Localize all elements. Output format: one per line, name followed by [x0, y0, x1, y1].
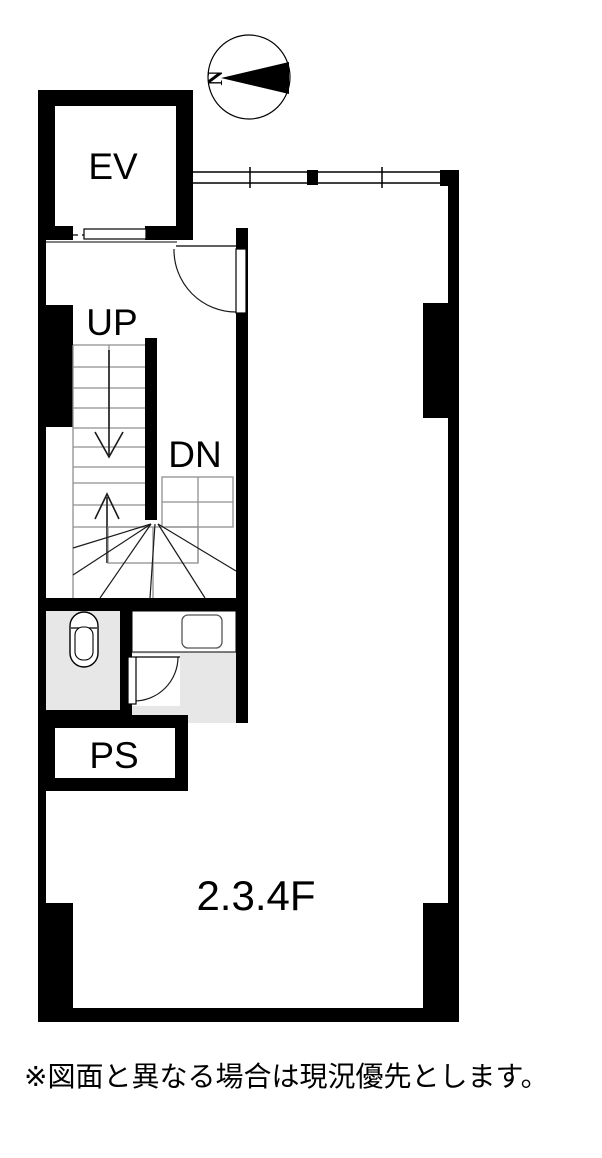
wall-left-pilaster-lower: [38, 903, 73, 1020]
floor-plan-canvas: N: [0, 0, 602, 1158]
wall-right-outer: [448, 172, 459, 1022]
floor-number-label: 2.3.4F: [196, 872, 315, 919]
wall-stair-bottom: [38, 598, 248, 611]
compass: N: [203, 35, 290, 119]
wall-left-pilaster-upper: [38, 305, 73, 427]
stairs-down-label: DN: [168, 434, 221, 475]
wall-top-right-corner: [440, 170, 459, 186]
elevator-label: EV: [88, 146, 138, 187]
wall-ev-right: [176, 90, 193, 240]
sink-icon: [182, 615, 222, 648]
wall-ev-bottom-right: [145, 226, 177, 240]
washroom-door-leaf: [128, 657, 136, 704]
hall-door: [174, 246, 248, 313]
wall-stair-center: [145, 338, 157, 520]
wall-ev-left: [38, 90, 55, 240]
compass-north-label: N: [203, 70, 227, 85]
toilet-icon: [70, 612, 98, 667]
stairs-up-label: UP: [86, 302, 137, 343]
north-arrow-icon: [221, 62, 289, 94]
stair-dn-grid: [108, 477, 233, 598]
hall-door-swing-arc: [174, 249, 236, 312]
floor-plan-page: N: [0, 0, 602, 1158]
wall-bottom: [38, 1008, 459, 1022]
wall-ev-top: [38, 90, 193, 106]
pipe-shaft-label: PS: [89, 735, 138, 776]
disclaimer-note: ※図面と異なる場合は現況優先とします。: [24, 1060, 549, 1093]
hall-door-leaf: [236, 249, 246, 313]
wall-right-pilaster-lower: [423, 903, 459, 1020]
bathroom: [46, 611, 236, 723]
stair-down-arrow-icon: [95, 350, 123, 457]
wall-right-pilaster-upper: [423, 303, 459, 418]
wall-ev-bottom-left: [38, 226, 73, 240]
elevator-door-panel: [84, 229, 146, 239]
stair-winder-fan: [73, 524, 236, 598]
washroom-door: [128, 654, 180, 706]
washroom-door-opening: [132, 654, 180, 706]
